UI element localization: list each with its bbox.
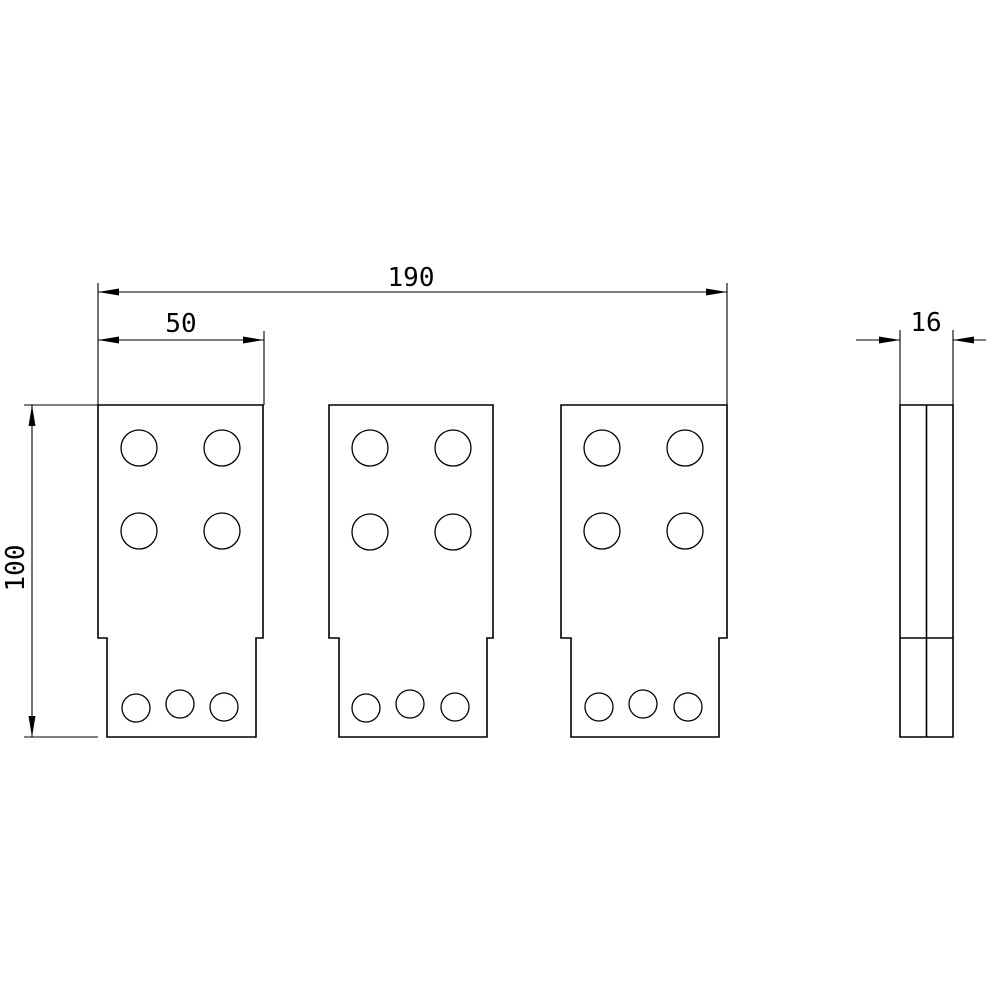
dimension-label-thickness: 16 <box>910 308 941 338</box>
front-view-plate-1 <box>98 405 263 737</box>
bolt-hole-small <box>674 693 702 721</box>
bolt-hole <box>204 430 240 466</box>
technical-drawing-svg: 190 50 100 16 <box>0 0 1000 1000</box>
arrowhead-left-icon <box>98 289 119 296</box>
bolt-hole <box>584 430 620 466</box>
bolt-hole <box>667 513 703 549</box>
bolt-hole <box>204 513 240 549</box>
bolt-hole <box>667 430 703 466</box>
bolt-hole <box>435 514 471 550</box>
bolt-hole <box>121 430 157 466</box>
bolt-hole-small <box>396 690 424 718</box>
bolt-hole-small <box>352 694 380 722</box>
dimension-plate-width: 50 <box>98 309 264 405</box>
dimension-thickness: 16 <box>856 308 986 405</box>
arrowhead-left-icon <box>98 337 119 344</box>
bolt-hole <box>121 513 157 549</box>
bolt-hole <box>584 513 620 549</box>
bolt-hole <box>435 430 471 466</box>
dimension-label-plate-height: 100 <box>1 545 31 592</box>
arrowhead-bottom-icon <box>29 716 36 737</box>
arrowhead-right-icon <box>243 337 264 344</box>
arrowhead-left-icon <box>879 337 900 344</box>
dimension-plate-height: 100 <box>1 405 98 737</box>
arrowhead-right-icon <box>706 289 727 296</box>
bolt-hole-small <box>585 693 613 721</box>
dimension-label-plate-width: 50 <box>165 309 196 339</box>
side-view <box>900 405 953 737</box>
bolt-hole-small <box>166 690 194 718</box>
bolt-hole <box>352 514 388 550</box>
front-view-plate-2 <box>329 405 493 737</box>
front-view-plate-3 <box>561 405 727 737</box>
dimension-label-overall-width: 190 <box>388 263 435 293</box>
bolt-hole-small <box>629 690 657 718</box>
bolt-hole-small <box>441 693 469 721</box>
bolt-hole-small <box>210 693 238 721</box>
arrowhead-top-icon <box>29 405 36 426</box>
arrowhead-right-icon <box>953 337 974 344</box>
bolt-hole-small <box>122 694 150 722</box>
bolt-hole <box>352 430 388 466</box>
drawing-canvas: 190 50 100 16 <box>0 0 1000 1000</box>
